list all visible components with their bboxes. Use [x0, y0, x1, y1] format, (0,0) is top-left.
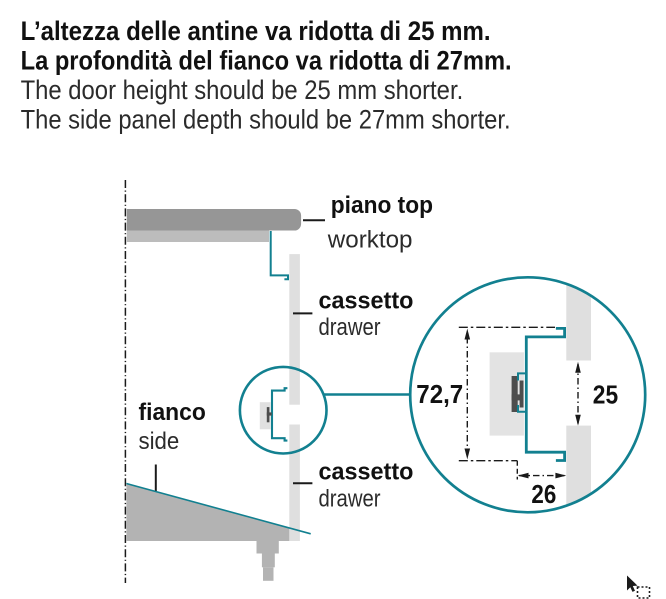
svg-text:La profondità del fianco va ri: La profondità del fianco va ridotta di 2…	[21, 46, 512, 76]
svg-text:L’altezza delle antine va rido: L’altezza delle antine va ridotta di 25 …	[21, 16, 491, 46]
svg-text:cassetto: cassetto	[319, 288, 414, 315]
svg-text:drawer: drawer	[319, 314, 381, 341]
svg-text:The side panel depth should be: The side panel depth should be 27mm shor…	[21, 105, 511, 135]
svg-text:26: 26	[531, 479, 556, 509]
svg-text:72,7: 72,7	[416, 379, 463, 409]
svg-text:worktop: worktop	[327, 227, 413, 254]
svg-text:fianco: fianco	[139, 399, 206, 426]
svg-text:drawer: drawer	[319, 485, 381, 512]
svg-text:25: 25	[593, 380, 618, 410]
svg-text:side: side	[139, 428, 180, 455]
svg-text:The door height should be 25 m: The door height should be 25 mm shorter.	[21, 75, 464, 105]
svg-text:piano top: piano top	[331, 192, 433, 219]
svg-text:cassetto: cassetto	[319, 459, 414, 486]
